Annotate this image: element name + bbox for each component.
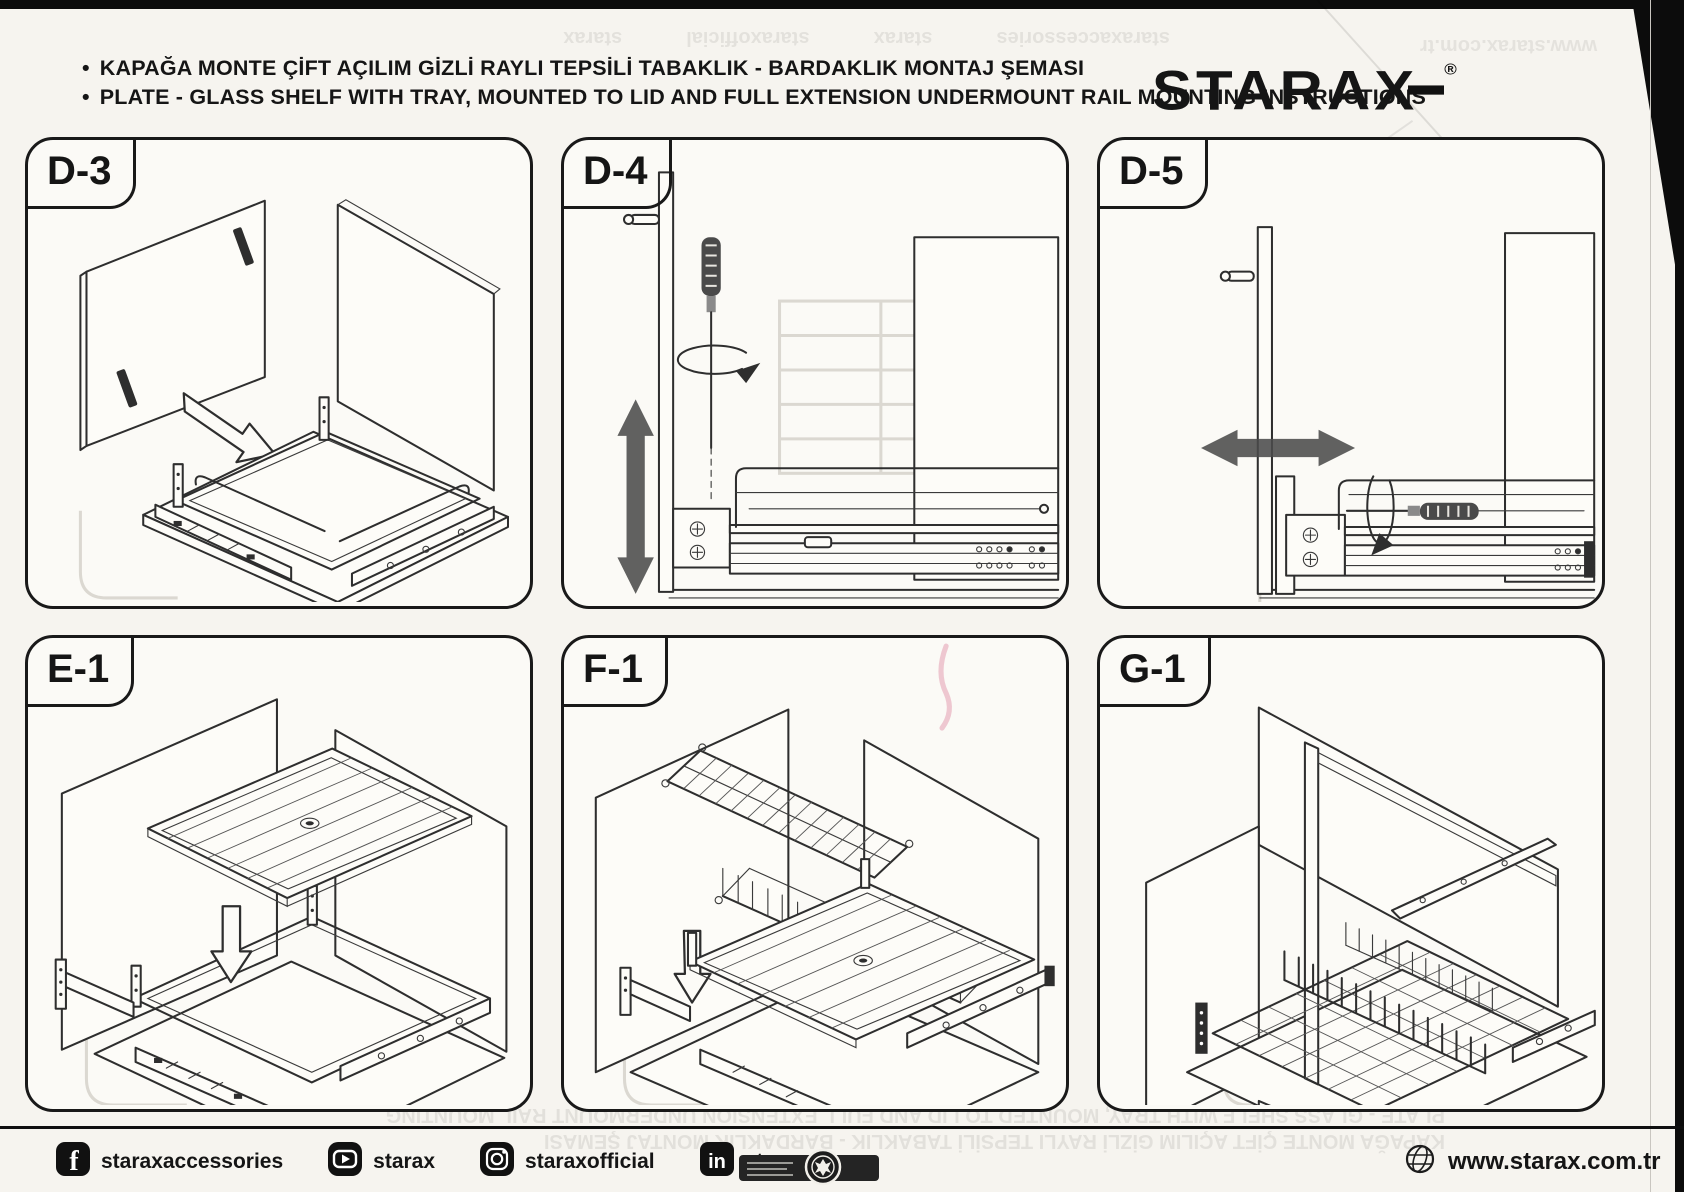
social-facebook: f staraxaccessories [55, 1141, 283, 1182]
social-handle: starax [373, 1150, 435, 1174]
d4-illustration-vertical-adjustment [568, 144, 1062, 602]
instagram-icon [479, 1141, 515, 1182]
scanner-edge-top [0, 0, 1684, 9]
svg-text:f: f [69, 1146, 79, 1177]
facebook-icon: f [55, 1141, 91, 1182]
bullet: • [82, 85, 90, 109]
panel-label: D-5 [1099, 139, 1208, 209]
showthrough-footer-text: staraxaccessories starax staraxofficial … [170, 26, 1170, 49]
panel-f1: F-1 [561, 635, 1069, 1112]
paper-edge-line [1650, 0, 1651, 1192]
social-links: f staraxaccessories starax staraxofficia… [55, 1141, 807, 1182]
footer-divider [0, 1126, 1684, 1129]
panel-label: E-1 [27, 637, 134, 707]
logo-dash [1408, 85, 1444, 94]
panel-label: F-1 [563, 637, 668, 707]
linkedin-icon: in [699, 1141, 735, 1182]
social-handle: staraxaccessories [101, 1150, 283, 1174]
panel-d3: D-3 [25, 137, 533, 609]
brand-logo: STARAX® [1152, 59, 1457, 122]
panel-d5: D-5 [1097, 137, 1605, 609]
scanned-instruction-sheet: staraxaccessories starax staraxofficial … [0, 0, 1684, 1192]
e1-illustration-tray-placement [32, 642, 526, 1105]
showthrough-website-text: www.starax.com.tr [1420, 34, 1597, 57]
panel-d4: D-4 [561, 137, 1069, 609]
f1-illustration-plate-rack-placement [568, 642, 1062, 1105]
panel-label: D-4 [563, 139, 672, 209]
panel-g1: G-1 [1097, 635, 1605, 1112]
panel-label: G-1 [1099, 637, 1211, 707]
instruction-panels-grid: D-3 [25, 137, 1605, 1112]
youtube-icon [327, 1141, 363, 1182]
website-link: www.starax.com.tr [1404, 1143, 1661, 1180]
bullet: • [82, 56, 90, 80]
footer: f staraxaccessories starax staraxofficia… [0, 1133, 1684, 1192]
d5-illustration-horizontal-adjustment [1104, 144, 1598, 602]
website-url: www.starax.com.tr [1448, 1148, 1661, 1176]
social-youtube: starax [327, 1141, 435, 1182]
certification-stamp [735, 1147, 895, 1192]
social-handle: staraxofficial [525, 1150, 655, 1174]
social-instagram: staraxofficial [479, 1141, 655, 1182]
d3-illustration-door-mounting [32, 144, 526, 602]
g1-illustration-assembled-unit [1104, 642, 1598, 1105]
svg-text:in: in [708, 1151, 726, 1173]
panel-e1: E-1 [25, 635, 533, 1112]
globe-icon [1404, 1143, 1436, 1180]
panel-label: D-3 [27, 139, 136, 209]
